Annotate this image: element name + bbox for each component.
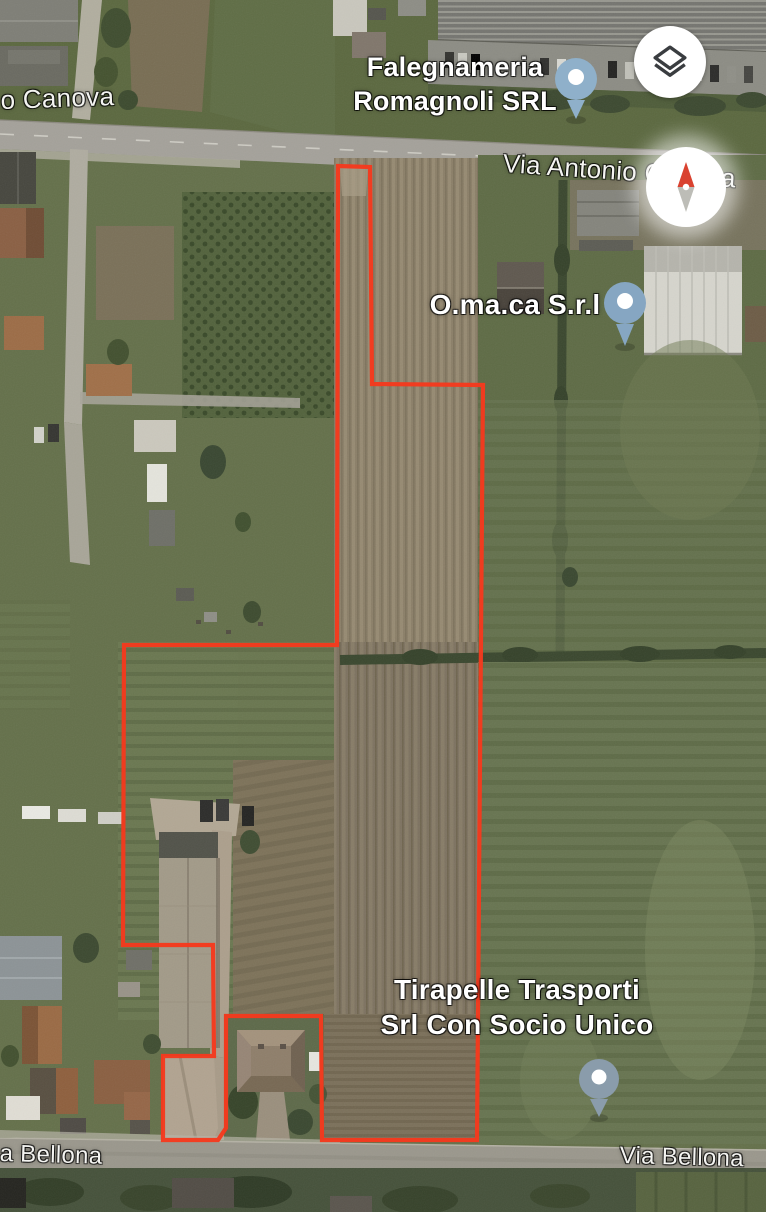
layers-icon <box>652 45 688 79</box>
place-label-falegnameria[interactable]: Falegnameria Romagnoli SRL <box>260 50 650 118</box>
place-label-line: Srl Con Socio Unico <box>317 1007 717 1042</box>
place-label-line: O.ma.ca S.r.l <box>330 288 700 322</box>
place-label-line: Tirapelle Trasporti <box>317 972 717 1007</box>
layers-button[interactable] <box>634 26 706 98</box>
compass-icon <box>666 159 706 215</box>
place-label-line: Romagnoli SRL <box>260 84 650 118</box>
place-label-line: Falegnameria <box>260 50 650 84</box>
road-label-bellona-left: a Bellona <box>0 1140 103 1171</box>
road-label-bellona-right: Via Bellona <box>619 1142 744 1173</box>
compass-button[interactable] <box>646 147 726 227</box>
road-label-canova-left: o Canova <box>0 81 115 116</box>
place-label-omaca[interactable]: O.ma.ca S.r.l <box>330 288 700 322</box>
place-label-tirapelle[interactable]: Tirapelle Trasporti Srl Con Socio Unico <box>317 972 717 1042</box>
map-canvas[interactable]: o Canova Via Antonio Canova a Bellona Vi… <box>0 0 766 1212</box>
